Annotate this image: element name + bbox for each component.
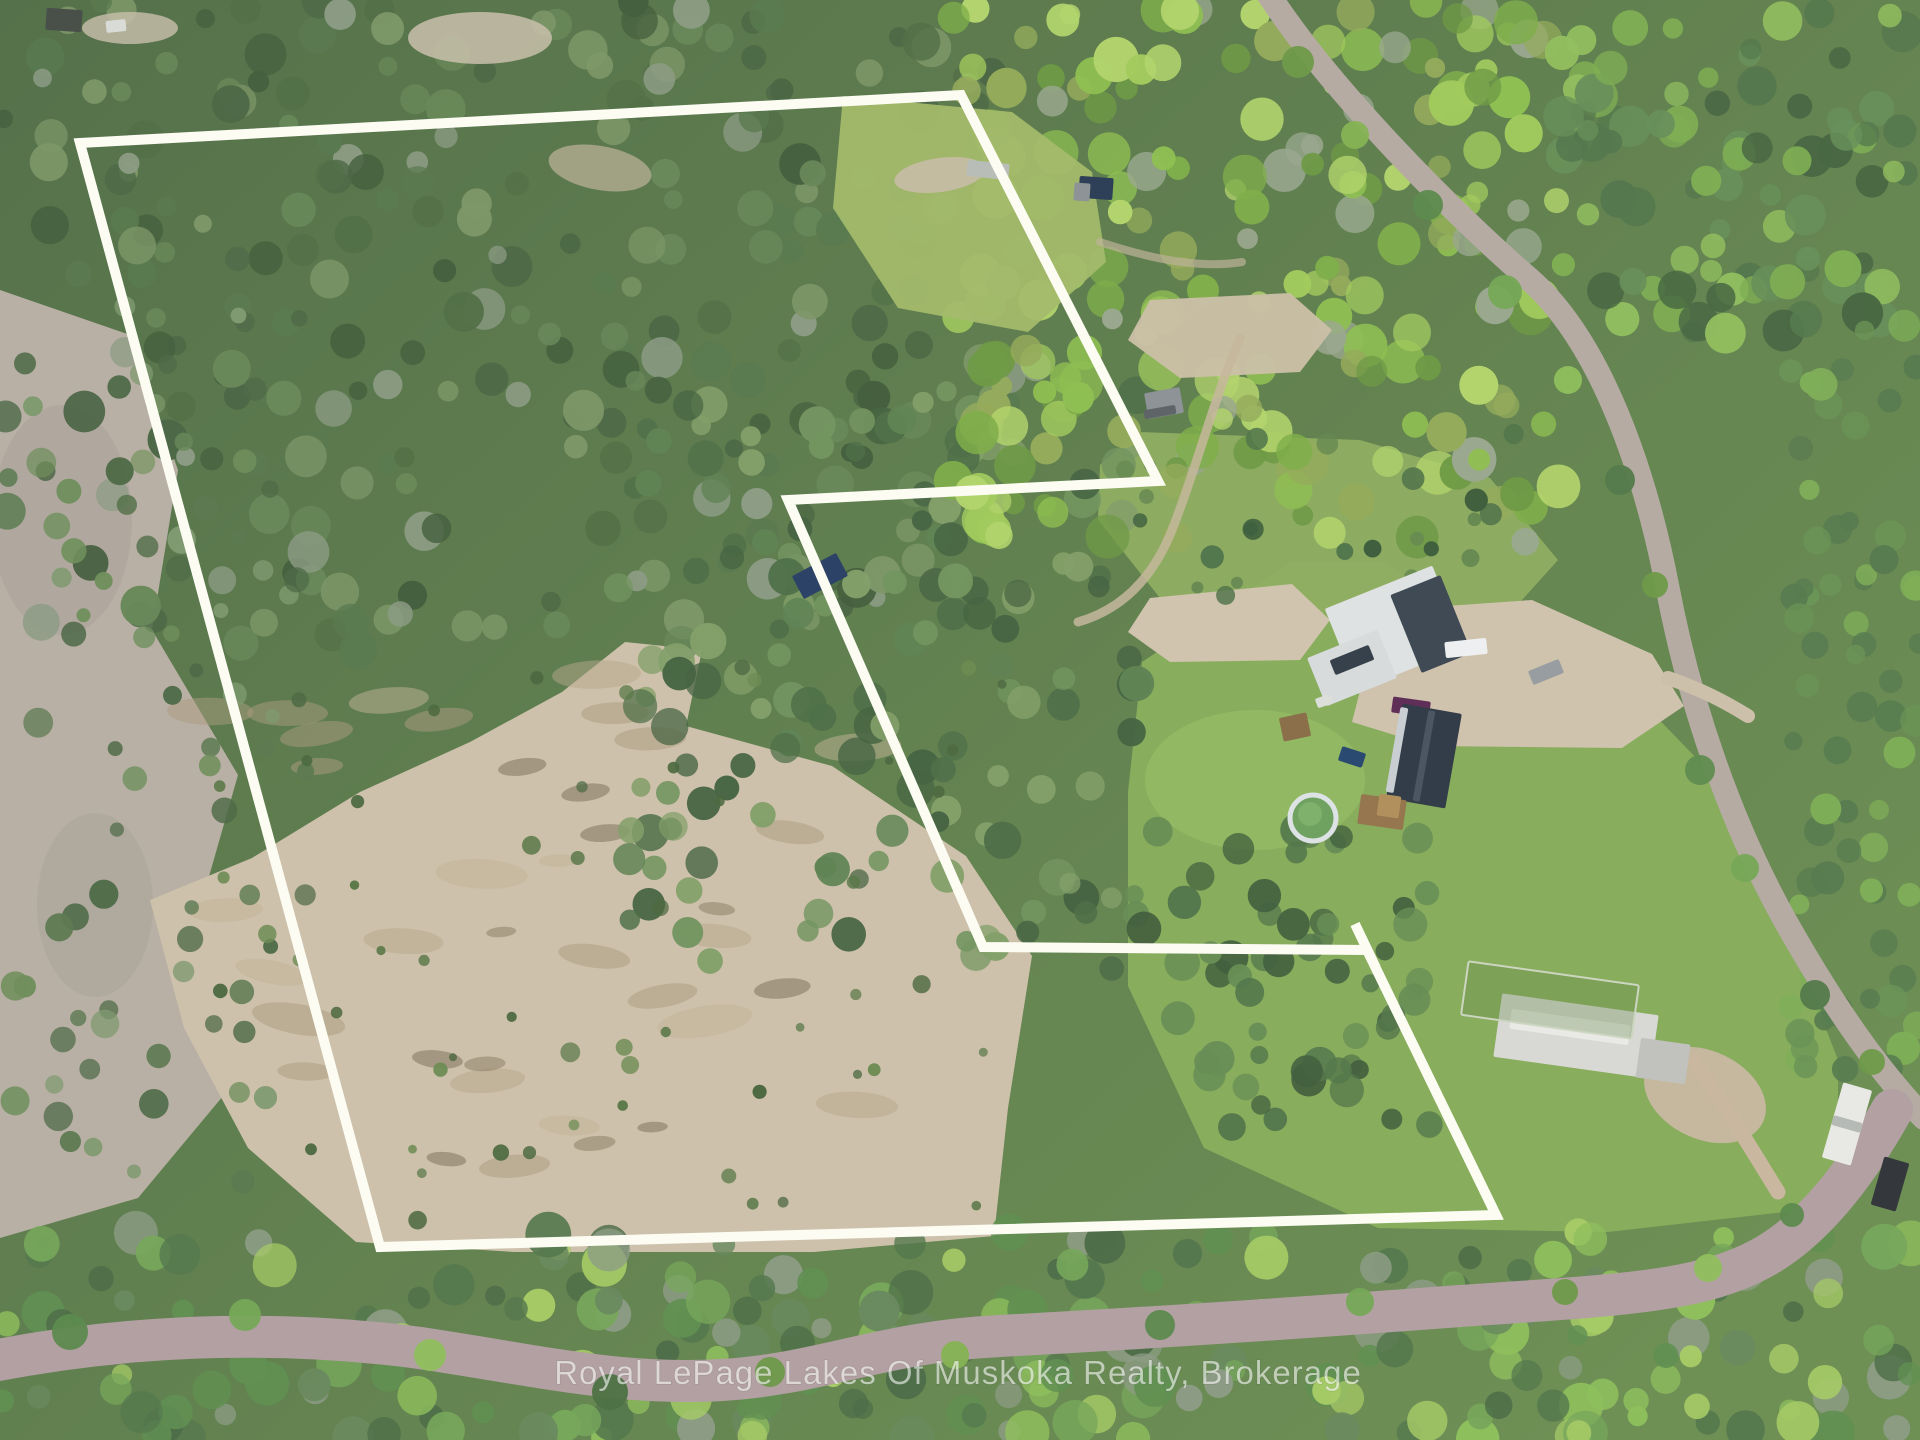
clearing-top-left bbox=[82, 12, 178, 44]
deck-light bbox=[1377, 794, 1402, 819]
white-house-wing bbox=[1635, 1038, 1690, 1085]
white-object-top-left bbox=[105, 19, 126, 33]
aerial-photo: Royal LePage Lakes Of Muskoka Realty, Br… bbox=[0, 0, 1920, 1440]
shed-top-left bbox=[45, 8, 82, 32]
aerial-photo-svg: Royal LePage Lakes Of Muskoka Realty, Br… bbox=[0, 0, 1920, 1440]
pool-highlight bbox=[1298, 802, 1322, 826]
clearing-top-center bbox=[408, 12, 552, 64]
cabin-top-gray bbox=[1073, 182, 1090, 201]
brokerage-watermark: Royal LePage Lakes Of Muskoka Realty, Br… bbox=[554, 1354, 1362, 1391]
